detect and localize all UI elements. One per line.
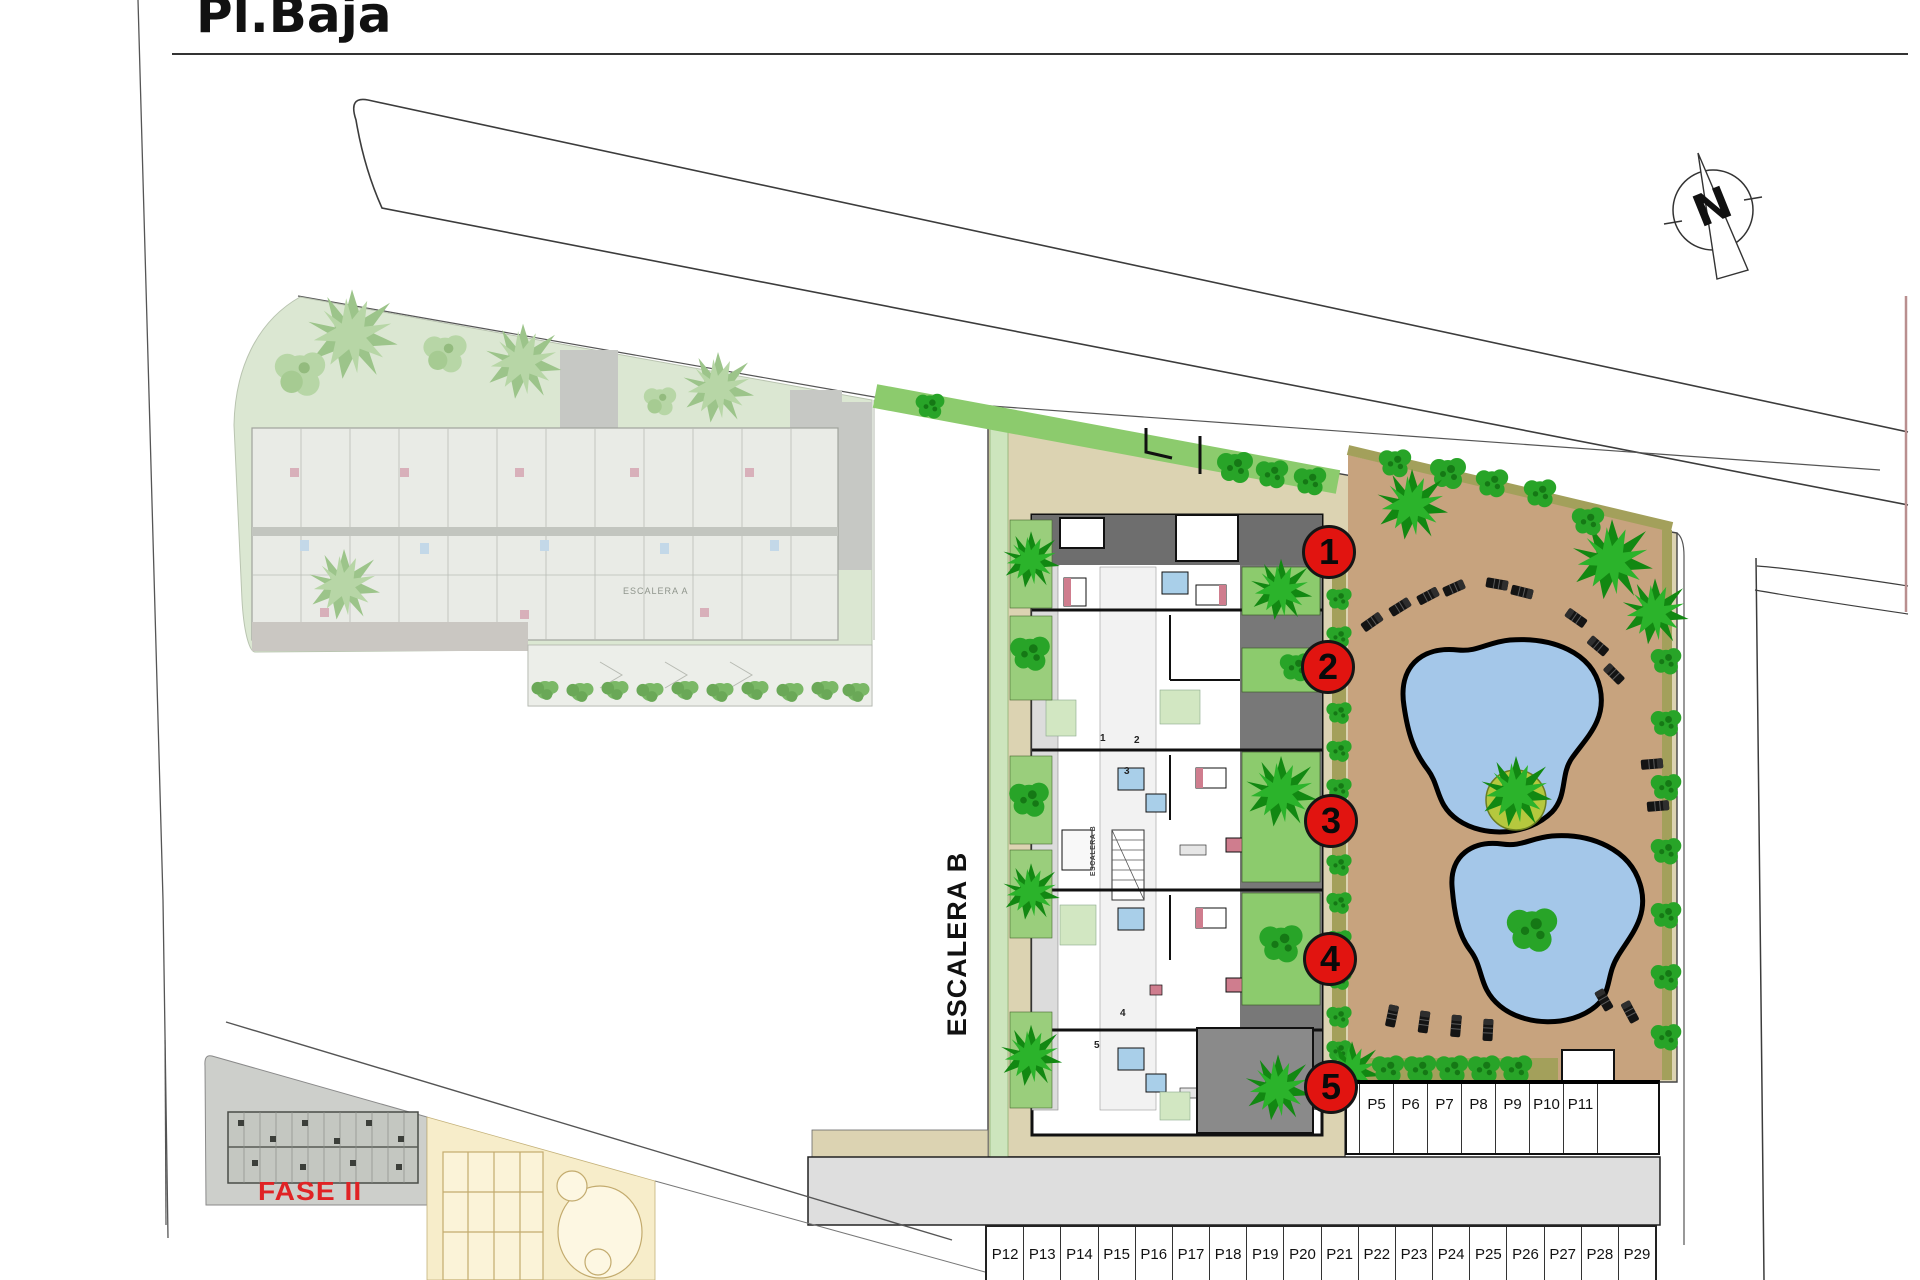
escalera-b-inner-label: ESCALERA B xyxy=(1090,819,1100,883)
parking-stall-p15: P15 xyxy=(1099,1227,1136,1280)
parking-stall-p21: P21 xyxy=(1322,1227,1359,1280)
parking-row-lower: P12P13P14P15P16P17P18P19P20P21P22P23P24P… xyxy=(985,1225,1657,1280)
access-road xyxy=(808,1157,1660,1225)
unit-marker-1[interactable]: 1 xyxy=(1302,525,1356,579)
parking-stall-p25: P25 xyxy=(1470,1227,1507,1280)
plan-number-5: 5 xyxy=(1094,1040,1100,1051)
parking-stall-p19: P19 xyxy=(1247,1227,1284,1280)
fase2-mini-building xyxy=(228,1112,418,1183)
site-plan-canvas: N xyxy=(0,0,1920,1280)
parking-stall-p20: P20 xyxy=(1284,1227,1321,1280)
parking-stall-p10: P10 xyxy=(1530,1084,1564,1153)
parking-stall-p12: P12 xyxy=(987,1227,1024,1280)
parking-stall-p17: P17 xyxy=(1173,1227,1210,1280)
parking-stall-p24: P24 xyxy=(1433,1227,1470,1280)
parking-stall-empty xyxy=(1598,1084,1658,1153)
unit-marker-4[interactable]: 4 xyxy=(1303,932,1357,986)
parking-stall-p28: P28 xyxy=(1582,1227,1619,1280)
parking-stall-p13: P13 xyxy=(1024,1227,1061,1280)
fase2-label: FASE II xyxy=(258,1176,362,1207)
parking-stall-p18: P18 xyxy=(1210,1227,1247,1280)
parking-stall-p23: P23 xyxy=(1396,1227,1433,1280)
plan-number-1: 1 xyxy=(1100,733,1106,744)
parking-stall-p8: P8 xyxy=(1462,1084,1496,1153)
plan-number-4: 4 xyxy=(1120,1008,1126,1019)
parking-stall-p16: P16 xyxy=(1136,1227,1173,1280)
green-walk-strip xyxy=(990,412,1008,1157)
escalera-a-label: ESCALERA A xyxy=(623,586,713,596)
page-title: Pl.Baja xyxy=(196,0,392,44)
parking-stall-p6: P6 xyxy=(1394,1084,1428,1153)
parking-stall-p27: P27 xyxy=(1545,1227,1582,1280)
parking-stall-p29: P29 xyxy=(1619,1227,1655,1280)
pool-shed xyxy=(1562,1050,1614,1082)
parking-stall-p26: P26 xyxy=(1507,1227,1544,1280)
unit-marker-5[interactable]: 5 xyxy=(1304,1060,1358,1114)
parking-stall-p14: P14 xyxy=(1061,1227,1098,1280)
north-compass: N xyxy=(1664,153,1762,279)
parking-row-upper: P5P6P7P8P9P10P11 xyxy=(1345,1080,1660,1155)
faded-site-escalera-a xyxy=(234,286,874,706)
unit-marker-3[interactable]: 3 xyxy=(1304,794,1358,848)
parking-stall-p22: P22 xyxy=(1359,1227,1396,1280)
building-escalera-b xyxy=(999,515,1322,1135)
unit-marker-2[interactable]: 2 xyxy=(1301,640,1355,694)
north-letter: N xyxy=(1686,177,1739,238)
plan-number-3: 3 xyxy=(1124,766,1130,777)
parking-stall-p11: P11 xyxy=(1564,1084,1598,1153)
parking-stall-p5: P5 xyxy=(1360,1084,1394,1153)
parking-stall-p9: P9 xyxy=(1496,1084,1530,1153)
escalera-b-label: ESCALERA B xyxy=(942,819,972,1069)
parking-stall-p7: P7 xyxy=(1428,1084,1462,1153)
plan-number-2: 2 xyxy=(1134,735,1140,746)
